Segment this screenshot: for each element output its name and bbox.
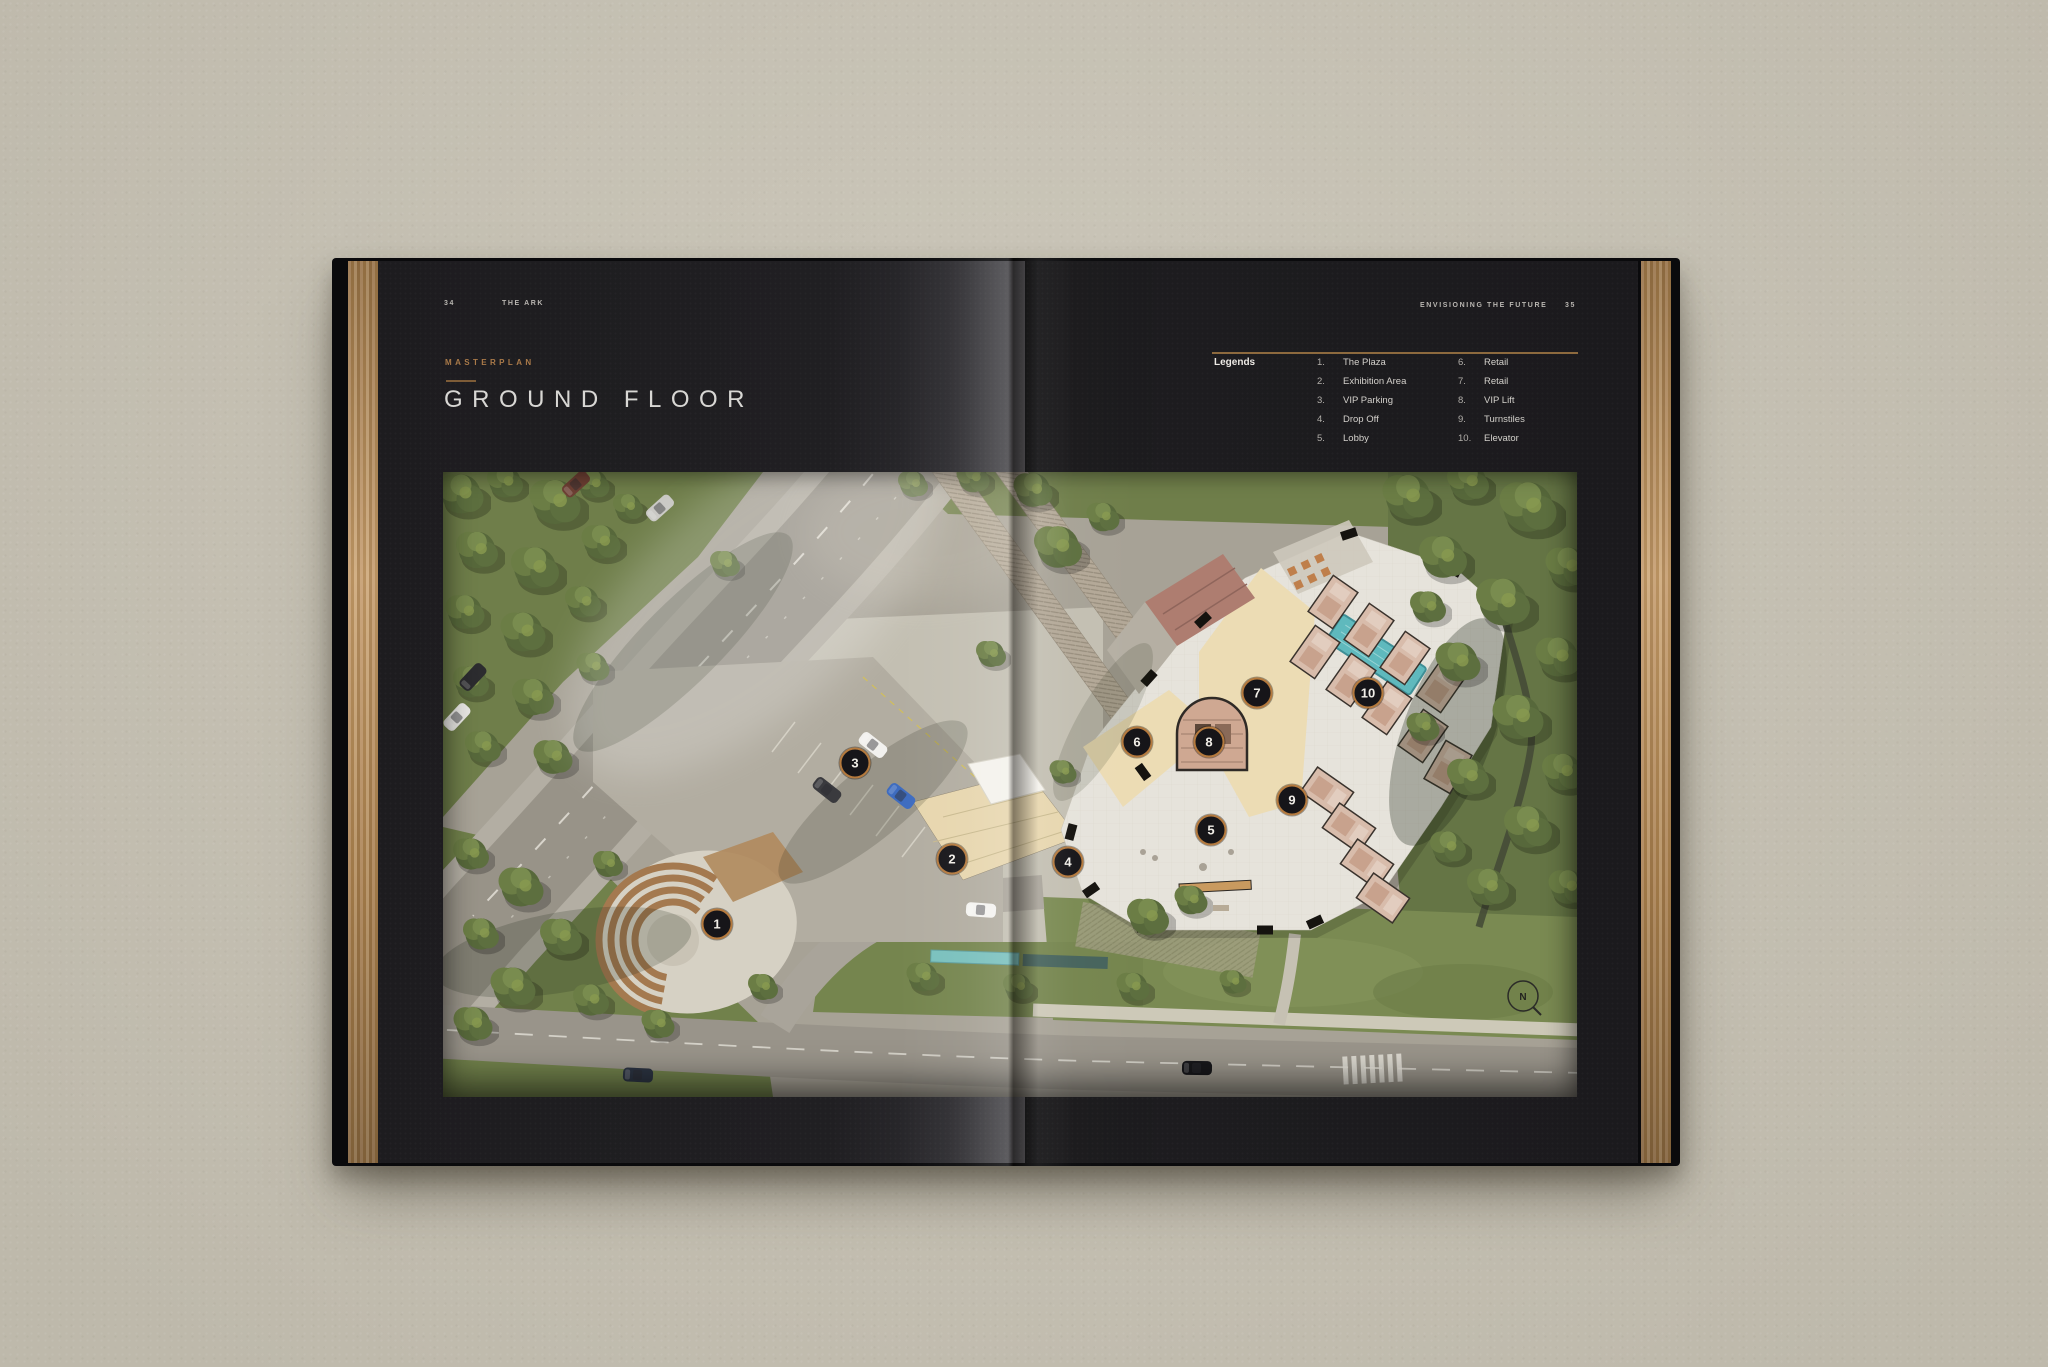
open-brochure: 34 THE ARK ENVISIONING THE FUTURE 35 MAS… bbox=[332, 258, 1680, 1166]
svg-text:N: N bbox=[1519, 992, 1526, 1003]
plan-marker-5: 5 bbox=[1196, 815, 1227, 846]
running-header-right: ENVISIONING THE FUTURE bbox=[1420, 302, 1547, 309]
legend-item-label: Lobby bbox=[1343, 433, 1369, 444]
legend-column-1: 1.The Plaza2.Exhibition Area3.VIP Parkin… bbox=[1317, 357, 1406, 452]
legend-item: 7.Retail bbox=[1458, 376, 1525, 395]
legend-item: 6.Retail bbox=[1458, 357, 1525, 376]
plan-marker-10: 10 bbox=[1353, 678, 1384, 709]
legend-item-label: Turnstiles bbox=[1484, 414, 1525, 425]
legend-item: 9.Turnstiles bbox=[1458, 414, 1525, 433]
legend-item-number: 7. bbox=[1458, 376, 1484, 387]
plan-marker-1: 1 bbox=[702, 909, 733, 940]
desk-background: 34 THE ARK ENVISIONING THE FUTURE 35 MAS… bbox=[0, 0, 2048, 1367]
legend-item-number: 2. bbox=[1317, 376, 1343, 387]
legend-item-number: 5. bbox=[1317, 433, 1343, 444]
plan-marker-2: 2 bbox=[937, 844, 968, 875]
eyebrow-underline bbox=[446, 380, 476, 382]
section-eyebrow: MASTERPLAN bbox=[445, 358, 535, 367]
legend-item: 4.Drop Off bbox=[1317, 414, 1406, 433]
legend-item-number: 3. bbox=[1317, 395, 1343, 406]
legend-item-label: Retail bbox=[1484, 357, 1508, 368]
legend-item-label: Elevator bbox=[1484, 433, 1519, 444]
legend-item-number: 1. bbox=[1317, 357, 1343, 368]
legend-item-label: Drop Off bbox=[1343, 414, 1379, 425]
plan-marker-8: 8 bbox=[1194, 727, 1225, 758]
plan-marker-7: 7 bbox=[1242, 678, 1273, 709]
site-plan-render: N 12345678910 bbox=[443, 472, 1577, 1097]
legend-item-number: 8. bbox=[1458, 395, 1484, 406]
legend-item-number: 4. bbox=[1317, 414, 1343, 425]
plan-marker-3: 3 bbox=[840, 748, 871, 779]
legend-item-number: 9. bbox=[1458, 414, 1484, 425]
legend-item: 5.Lobby bbox=[1317, 433, 1406, 452]
plan-marker-4: 4 bbox=[1053, 847, 1084, 878]
aerial-illustration: N bbox=[443, 472, 1577, 1097]
page-title: GROUND FLOOR bbox=[444, 386, 754, 414]
legend-rule bbox=[1212, 352, 1578, 354]
foil-edge-left bbox=[348, 261, 378, 1163]
legend-item-label: The Plaza bbox=[1343, 357, 1386, 368]
page-number-left: 34 bbox=[444, 300, 455, 307]
legend-item-label: Exhibition Area bbox=[1343, 376, 1406, 387]
legend-item: 2.Exhibition Area bbox=[1317, 376, 1406, 395]
legend-item: 10.Elevator bbox=[1458, 433, 1525, 452]
legend-item-label: Retail bbox=[1484, 376, 1508, 387]
legend-item: 3.VIP Parking bbox=[1317, 395, 1406, 414]
plan-marker-9: 9 bbox=[1277, 785, 1308, 816]
legend-item: 1.The Plaza bbox=[1317, 357, 1406, 376]
foil-edge-right bbox=[1641, 261, 1671, 1163]
page-number-right: 35 bbox=[1565, 302, 1576, 309]
legend-item-label: VIP Lift bbox=[1484, 395, 1514, 406]
legend-item-number: 10. bbox=[1458, 433, 1484, 444]
legend-label: Legends bbox=[1214, 357, 1255, 368]
legend-item-label: VIP Parking bbox=[1343, 395, 1393, 406]
legend-item: 8.VIP Lift bbox=[1458, 395, 1525, 414]
legend-item-number: 6. bbox=[1458, 357, 1484, 368]
legend-column-2: 6.Retail7.Retail8.VIP Lift9.Turnstiles10… bbox=[1458, 357, 1525, 452]
running-header-left: THE ARK bbox=[502, 300, 544, 307]
plan-marker-6: 6 bbox=[1122, 727, 1153, 758]
